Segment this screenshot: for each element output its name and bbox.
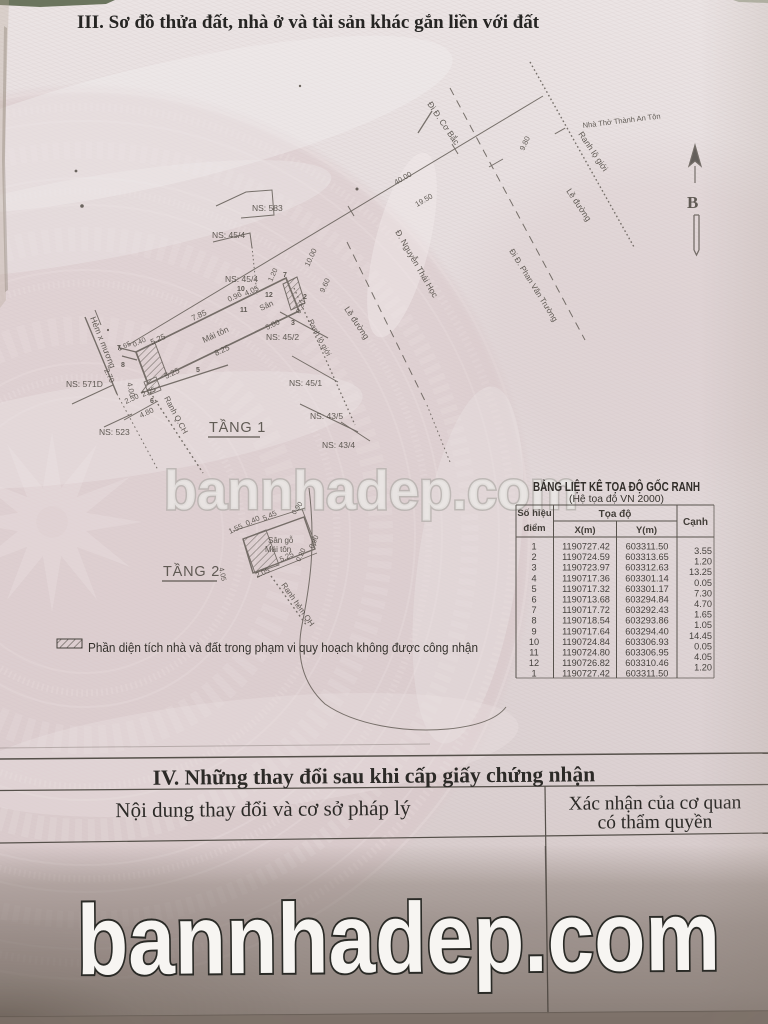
svg-text:NS: 43/4: NS: 43/4	[322, 440, 355, 450]
svg-text:Nội dung thay đổi và cơ sở phá: Nội dung thay đổi và cơ sở pháp lý	[115, 796, 411, 822]
svg-text:603313.65: 603313.65	[625, 552, 668, 562]
svg-text:8: 8	[121, 362, 125, 369]
svg-text:2: 2	[531, 552, 536, 562]
svg-text:1190727.42: 1190727.42	[562, 542, 610, 552]
svg-text:3: 3	[531, 563, 536, 573]
svg-text:12: 12	[529, 658, 539, 668]
svg-text:B: B	[687, 193, 698, 212]
svg-text:603301.14: 603301.14	[625, 573, 668, 583]
svg-text:1190723.97: 1190723.97	[562, 563, 610, 573]
svg-text:1: 1	[531, 542, 536, 552]
svg-text:1190717.36: 1190717.36	[562, 573, 610, 583]
svg-text:1190724.80: 1190724.80	[562, 648, 610, 658]
svg-text:7: 7	[531, 605, 536, 615]
svg-text:1190724.59: 1190724.59	[562, 552, 610, 562]
svg-text:1190724.84: 1190724.84	[562, 637, 610, 647]
svg-text:NS: 45/4: NS: 45/4	[225, 274, 258, 284]
svg-text:Mái tôn: Mái tôn	[265, 545, 291, 554]
svg-text:1190717.72: 1190717.72	[562, 605, 610, 615]
svg-text:11: 11	[529, 648, 539, 658]
svg-text:603312.63: 603312.63	[625, 563, 668, 573]
svg-text:NS: 45/1: NS: 45/1	[289, 378, 322, 388]
svg-text:2: 2	[303, 294, 307, 301]
svg-text:603311.50: 603311.50	[626, 669, 669, 679]
svg-text:bannhadep.com: bannhadep.com	[77, 880, 721, 995]
svg-text:8: 8	[531, 616, 536, 626]
svg-text:4: 4	[531, 573, 536, 583]
svg-text:điểm: điểm	[523, 523, 545, 534]
svg-text:603293.86: 603293.86	[625, 616, 668, 626]
svg-text:Phần diện tích nhà và đất tron: Phần diện tích nhà và đất trong phạm vi …	[88, 640, 478, 655]
svg-text:603306.95: 603306.95	[625, 648, 668, 658]
svg-text:9: 9	[531, 626, 536, 636]
svg-text:1190727.42: 1190727.42	[562, 669, 610, 679]
svg-text:IV. Những thay đổi sau khi cấp: IV. Những thay đổi sau khi cấp giấy chứn…	[153, 762, 596, 789]
svg-text:Số hiệu: Số hiệu	[517, 508, 552, 519]
svg-text:6: 6	[531, 595, 536, 605]
svg-text:6: 6	[150, 398, 154, 405]
svg-text:(Hệ tọa độ VN 2000): (Hệ tọa độ VN 2000)	[569, 494, 664, 505]
svg-text:3: 3	[291, 320, 295, 327]
svg-text:NS: 45/4: NS: 45/4	[212, 230, 245, 240]
svg-text:1190713.68: 1190713.68	[562, 595, 610, 605]
svg-text:TẦNG 1: TẦNG 1	[209, 419, 266, 436]
svg-text:III. Sơ đồ thửa đất, nhà ở và: III. Sơ đồ thửa đất, nhà ở và tài sản kh…	[77, 12, 540, 33]
svg-text:603306.93: 603306.93	[625, 637, 668, 647]
svg-text:Sân gỗ: Sân gỗ	[268, 536, 294, 545]
svg-text:10: 10	[529, 637, 539, 647]
svg-text:Y(m): Y(m)	[636, 525, 657, 536]
svg-text:12: 12	[265, 292, 273, 299]
svg-text:11: 11	[240, 307, 248, 314]
svg-text:X(m): X(m)	[574, 525, 595, 536]
svg-text:NS: 43/5: NS: 43/5	[310, 411, 343, 421]
svg-text:603294.84: 603294.84	[625, 595, 668, 605]
svg-text:5: 5	[531, 584, 536, 594]
svg-text:1190726.82: 1190726.82	[562, 658, 610, 668]
svg-text:5: 5	[196, 367, 200, 374]
svg-text:NS: 45/2: NS: 45/2	[266, 332, 299, 342]
svg-text:603294.40: 603294.40	[625, 626, 668, 636]
svg-text:NS: 571D: NS: 571D	[66, 379, 103, 389]
svg-text:1190717.32: 1190717.32	[562, 584, 610, 594]
svg-text:NS: 583: NS: 583	[252, 203, 283, 213]
svg-text:NS: 523: NS: 523	[99, 427, 130, 437]
svg-text:7: 7	[283, 272, 287, 279]
svg-text:7: 7	[117, 345, 121, 352]
svg-text:603311.50: 603311.50	[626, 542, 669, 552]
svg-text:1: 1	[531, 669, 536, 679]
svg-text:TẦNG 2: TẦNG 2	[163, 563, 220, 580]
svg-text:1190717.64: 1190717.64	[562, 626, 610, 636]
svg-text:603301.17: 603301.17	[625, 584, 668, 594]
svg-text:10: 10	[237, 286, 245, 293]
svg-text:1190718.54: 1190718.54	[562, 616, 610, 626]
svg-text:603310.46: 603310.46	[625, 658, 668, 668]
svg-text:Tọa độ: Tọa độ	[599, 509, 632, 520]
svg-text:có thẩm quyền: có thẩm quyền	[597, 812, 712, 834]
svg-text:603292.43: 603292.43	[625, 605, 668, 615]
svg-text:BẢNG LIỆT KÊ TỌA ĐỘ GỐC RANH: BẢNG LIỆT KÊ TỌA ĐỘ GỐC RANH	[533, 479, 700, 494]
